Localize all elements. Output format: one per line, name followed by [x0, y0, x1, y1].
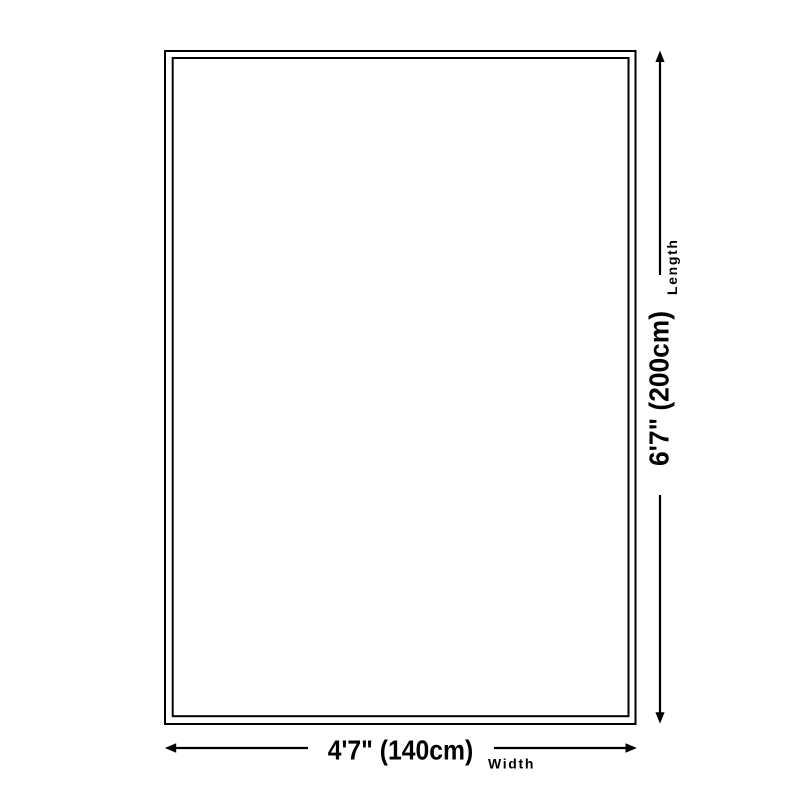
svg-text:6'7" (200cm): 6'7" (200cm): [644, 311, 675, 466]
svg-text:Length: Length: [664, 240, 680, 295]
svg-text:4'7" (140cm): 4'7" (140cm): [328, 734, 474, 765]
svg-text:Width: Width: [488, 756, 533, 772]
